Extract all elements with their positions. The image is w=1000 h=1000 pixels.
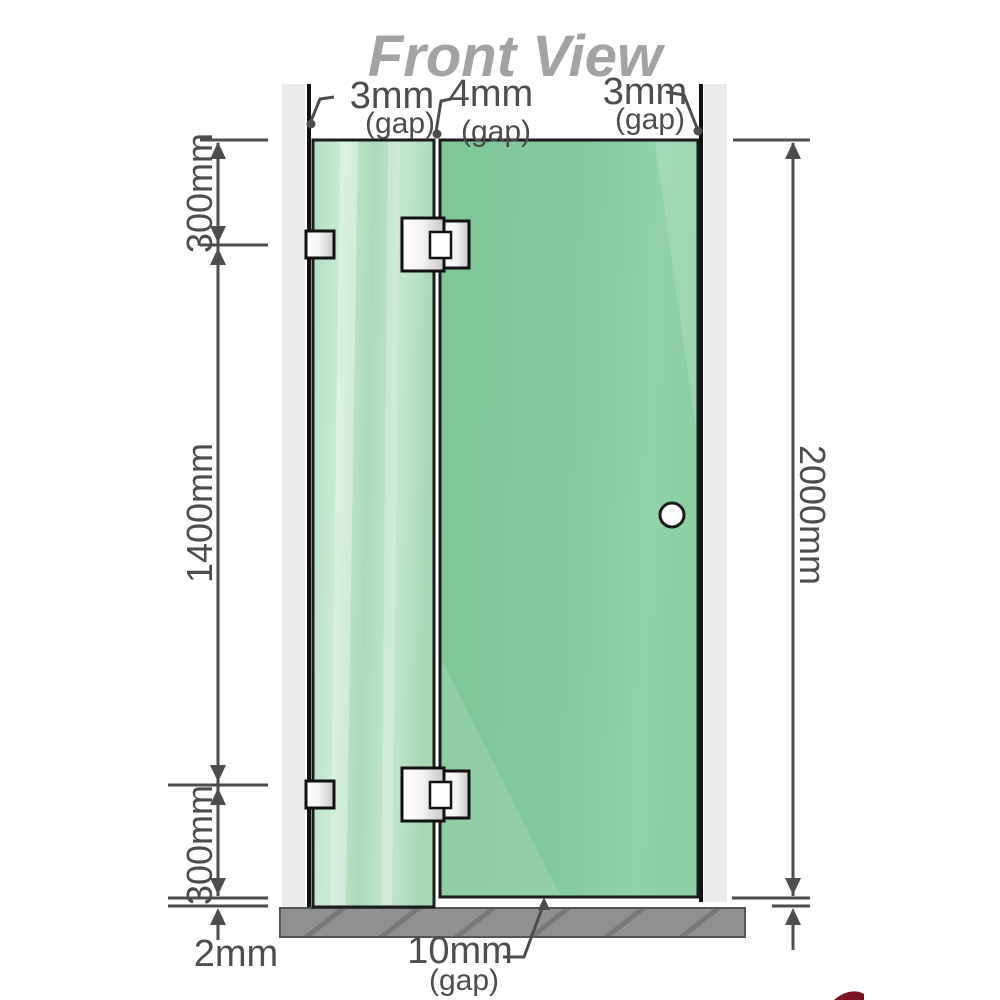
gap-callout-top-left: 3mm (gap) xyxy=(307,75,436,140)
left-wall xyxy=(282,84,305,908)
right-wall xyxy=(704,84,727,902)
bottom-wall-bracket xyxy=(306,781,334,808)
dimension-label-top-300mm: 300mm xyxy=(179,133,220,253)
dimension-label-total-2000mm: 2000mm xyxy=(792,445,833,585)
dimension-label-floor-2mm: 2mm xyxy=(194,933,278,975)
door-knob xyxy=(660,503,684,527)
gap-label-bottom-note: (gap) xyxy=(429,964,499,997)
gap-label-top-left-note: (gap) xyxy=(365,107,435,140)
dimension-label-bottom-300mm: 300mm xyxy=(179,785,220,905)
watermark-red-sliver xyxy=(834,991,864,1000)
top-glass-hinge xyxy=(402,218,469,271)
gap-callout-top-right: 3mm (gap) xyxy=(603,71,703,136)
dimension-label-middle-1400mm: 1400mm xyxy=(179,443,220,583)
bottom-glass-hinge xyxy=(402,768,469,821)
shower-screen-front-view-diagram: Front View xyxy=(0,0,1000,1000)
gap-label-top-middle-value: 4mm xyxy=(449,73,533,115)
gap-label-top-middle-note: (gap) xyxy=(461,115,531,148)
top-wall-bracket xyxy=(306,231,334,258)
right-wall-edge-line xyxy=(699,84,703,902)
right-dimension-total-height: 2000mm xyxy=(732,140,833,950)
left-dimension-chain: 300mm 1400mm 300mm 2mm xyxy=(168,133,278,975)
gap-label-top-right-note: (gap) xyxy=(615,103,685,136)
